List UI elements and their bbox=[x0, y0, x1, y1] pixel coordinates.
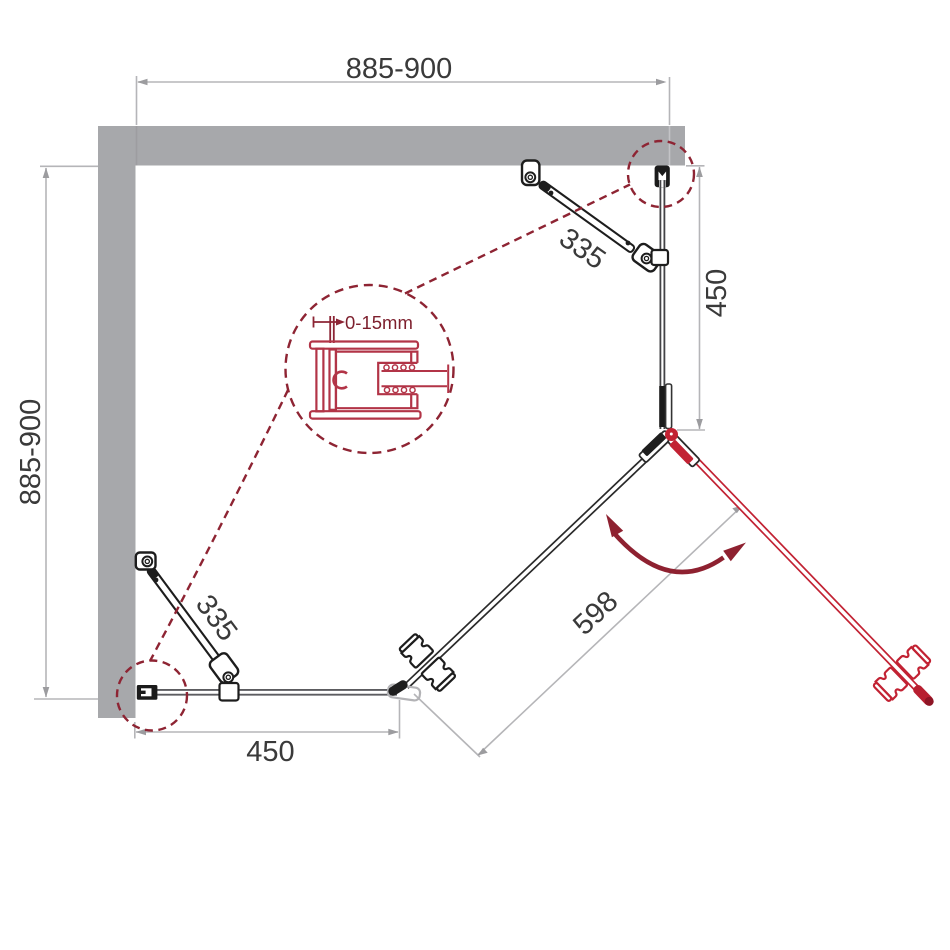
svg-text:450: 450 bbox=[701, 269, 733, 317]
svg-text:0-15mm: 0-15mm bbox=[345, 312, 413, 333]
svg-text:885-900: 885-900 bbox=[15, 399, 47, 505]
svg-text:450: 450 bbox=[246, 736, 294, 768]
svg-text:885-900: 885-900 bbox=[346, 53, 452, 85]
